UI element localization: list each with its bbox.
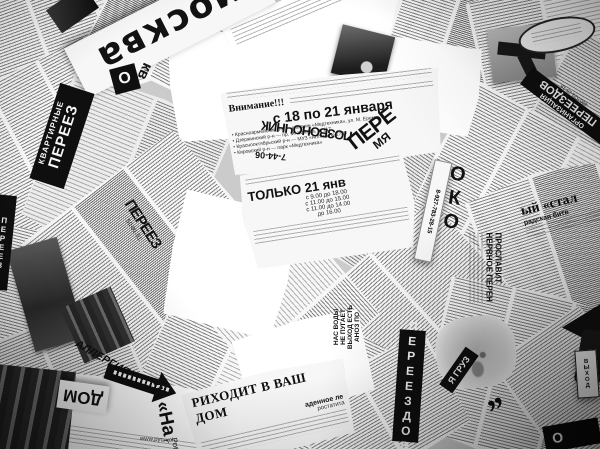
left-edge-banner-text: ПЕРЕЕЗ bbox=[0, 215, 9, 270]
proslavit-clipping: ПРОСЛАВИТ НЕРВНОЕ ПЕРЕН bbox=[448, 233, 503, 303]
letter-chip-text: О bbox=[117, 69, 134, 90]
nas-l1: НАС ВОДЫ bbox=[333, 291, 340, 363]
nas-l3: ВЫХОД ЕСТЬ bbox=[347, 291, 354, 363]
nas-l4: АНОЗ ПО bbox=[354, 291, 361, 363]
nas-vody-clipping: НАС ВОДЫ НЕ ПУГАЕТ ВЫХОД ЕСТЬ АНОЗ ПО bbox=[333, 291, 391, 363]
proslavit-l2: НЕРВНОЕ ПЕРЕН bbox=[485, 233, 494, 303]
phone-top-text: 7-44-06 bbox=[255, 150, 287, 163]
nas-l2: НЕ ПУГАЕТ bbox=[340, 291, 347, 363]
newspaper-collage-photo: москва кв О КВАРТИРНЫЕ ПЕРЕЕЗ ПЕРЕЕЗ ПЕР… bbox=[0, 0, 600, 449]
phone-top: 7-44-06 bbox=[254, 147, 286, 168]
vyhod-label: ВЫХОД bbox=[574, 349, 599, 398]
dom-text: ДОМ bbox=[62, 384, 104, 409]
roman-small: лс bbox=[149, 379, 169, 400]
url-value: www.pyc-vol bbox=[140, 436, 174, 444]
vyhod-text: ВЫХОД bbox=[583, 359, 591, 389]
pereezdov-vertical-text: ПЕРЕЕЗДОВ bbox=[397, 318, 420, 449]
bottom-bar-text: О bbox=[551, 429, 565, 447]
proslavit-l1: ПРОСЛАВИТ bbox=[494, 233, 503, 303]
url-text: www.pyc-vol bbox=[140, 427, 174, 447]
